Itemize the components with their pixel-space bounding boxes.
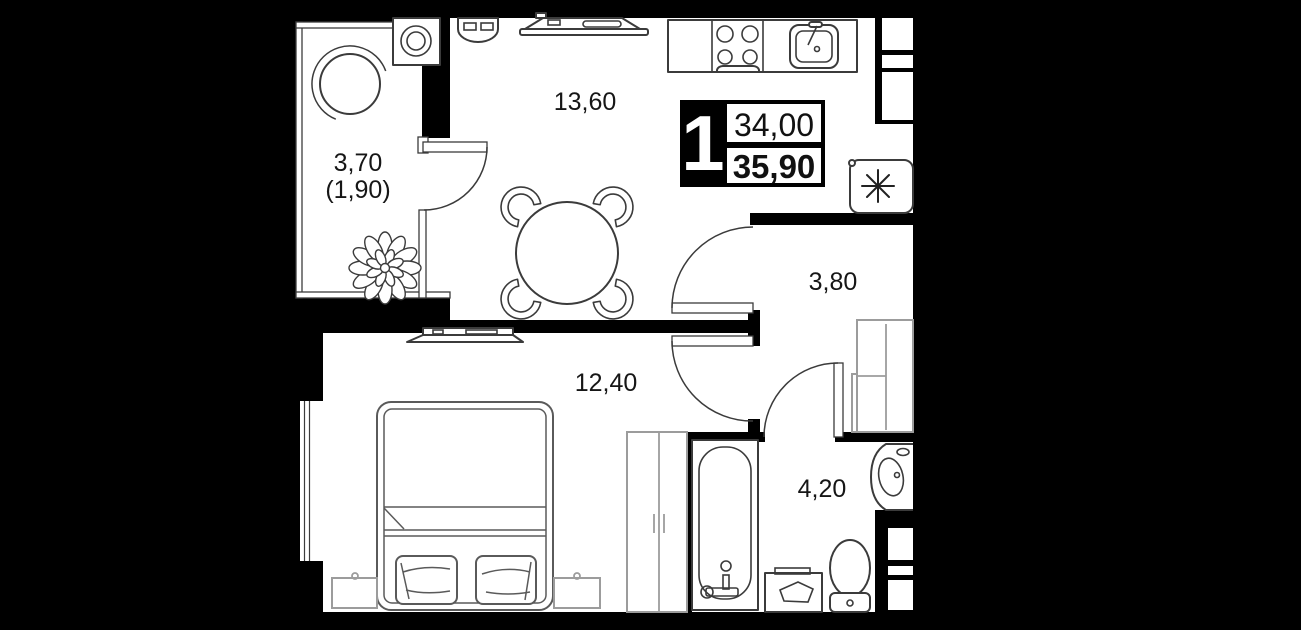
- bathroom-shaft-icon: [888, 528, 913, 560]
- toilet-icon: [830, 540, 870, 612]
- bedroom-wardrobe-icon: [627, 432, 687, 612]
- pillow-icon: [396, 556, 457, 604]
- badge-area-total: 35,90: [733, 148, 816, 185]
- bathroom-shaft-icon: [888, 580, 913, 610]
- hallway-area-label: 3,80: [809, 268, 858, 296]
- laundry-basket-icon: [765, 568, 822, 612]
- balcony-area-label-secondary: (1,90): [325, 176, 390, 204]
- washing-machine-icon: [393, 18, 440, 65]
- utility-marker: [849, 160, 913, 213]
- kitchen-shaft-icon: [882, 72, 913, 120]
- area-badge: 1 34,00 35,90: [680, 99, 825, 187]
- bedroom-window-icon: [300, 401, 323, 561]
- nightstand-icon: [332, 573, 377, 608]
- wall-console-icon: [458, 18, 498, 42]
- dining-table-icon: [516, 202, 618, 304]
- tv-bedroom-icon: [407, 328, 523, 342]
- bathroom-sink-icon: [871, 444, 913, 510]
- bed-icon: [377, 402, 553, 610]
- hallway-wardrobe-icon: [852, 320, 913, 432]
- badge-rooms-count: 1: [681, 99, 724, 187]
- bathroom-shaft-icon: [888, 566, 913, 575]
- bathtub-icon: [692, 440, 758, 610]
- apartment-floor-plan: 1 34,00 35,90: [0, 0, 1301, 630]
- floor-plan-canvas: 1 34,00 35,90: [0, 0, 1301, 630]
- utility-marker-icon: [862, 170, 894, 202]
- nightstand-icon: [554, 573, 600, 608]
- kitchen-shaft-icon: [882, 55, 913, 68]
- balcony-area-label: 3,70: [334, 149, 383, 177]
- bathroom-area-label: 4,20: [798, 475, 847, 503]
- pillow-icon: [476, 556, 536, 604]
- bedroom-area-label: 12,40: [575, 369, 638, 397]
- kitchen-sink-icon: [790, 22, 838, 68]
- kitchen-shaft-icon: [882, 18, 913, 50]
- badge-area-living: 34,00: [734, 107, 814, 143]
- living-kitchen-area-label: 13,60: [554, 88, 617, 116]
